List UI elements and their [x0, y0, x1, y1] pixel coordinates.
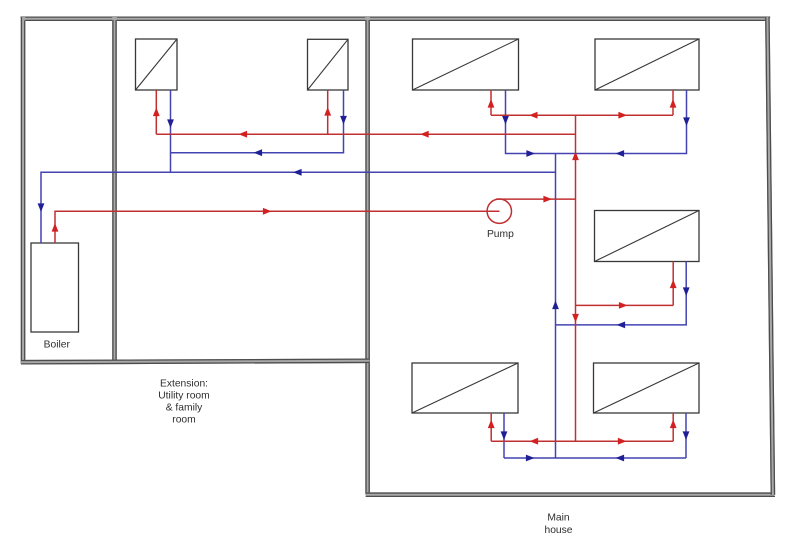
svg-text:room: room: [172, 414, 195, 425]
svg-text:Pump: Pump: [487, 229, 514, 240]
svg-text:Utility room: Utility room: [158, 390, 210, 401]
svg-text:Boiler: Boiler: [44, 339, 71, 350]
svg-text:Main: Main: [547, 513, 570, 524]
svg-text:house: house: [544, 525, 572, 536]
svg-text:& family: & family: [166, 402, 203, 413]
svg-text:Extension:: Extension:: [160, 378, 208, 389]
